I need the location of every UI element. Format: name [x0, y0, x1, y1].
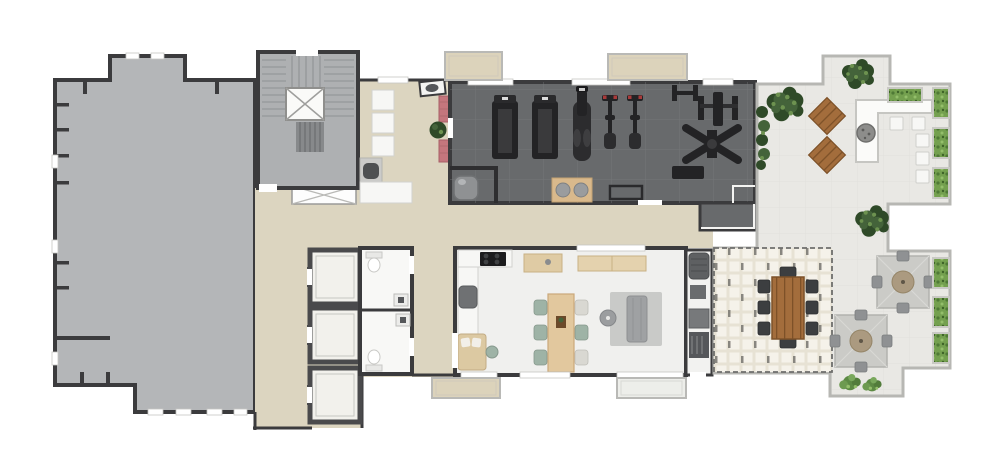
grill-sink	[690, 285, 706, 299]
treadmill-1	[492, 95, 518, 159]
dining-table	[548, 294, 574, 372]
stair-door-gap	[296, 48, 318, 56]
hedge-e4	[933, 258, 949, 288]
washbasin-1	[394, 294, 408, 306]
corridor-floor	[450, 203, 713, 248]
pergola-chair-r1	[806, 280, 818, 293]
elevator-2	[307, 308, 360, 362]
elevator-1	[307, 250, 360, 304]
hedge-top	[888, 88, 922, 102]
gym-south-door	[638, 200, 662, 205]
stool-1	[890, 117, 903, 130]
dining-table-group	[534, 294, 588, 372]
green-stool	[486, 346, 498, 358]
stair-lower-flight	[296, 122, 324, 152]
pergola-long-table	[772, 277, 804, 339]
stool-4	[916, 152, 929, 165]
grill	[689, 253, 709, 279]
daybed	[458, 334, 486, 370]
stair-core	[258, 48, 358, 192]
lounge-seat-2	[372, 113, 394, 133]
lounge-top-window	[378, 77, 408, 83]
room-open-slab-area	[52, 53, 255, 415]
lounge-seat-1	[372, 90, 394, 110]
cooktop	[480, 252, 506, 266]
hedge-e3	[933, 168, 949, 198]
treadmill-2	[532, 95, 558, 159]
low-bench	[672, 166, 704, 179]
gym-west-door	[448, 118, 453, 138]
armchair	[459, 286, 477, 308]
umbrella-table-1	[872, 251, 934, 313]
lounge-pouf	[363, 163, 379, 179]
sofa	[627, 296, 647, 342]
grill-door-gap	[690, 372, 706, 377]
pergola-chair-l3	[758, 322, 770, 335]
wall-sink	[419, 80, 445, 97]
lounge-counter	[360, 182, 412, 203]
grill-cabinet	[689, 332, 709, 358]
hedge-e1	[933, 88, 949, 118]
stair-void	[286, 88, 324, 120]
party-west-door	[452, 333, 458, 368]
slab-floor	[55, 56, 255, 412]
pergola-chair-r3	[806, 322, 818, 335]
hedge-e5	[933, 297, 949, 327]
gym-annex	[700, 203, 757, 230]
restroom-door-1	[409, 256, 414, 274]
pergola-chair-l2	[758, 301, 770, 314]
hedge-e2	[933, 128, 949, 158]
stool-2	[912, 117, 925, 130]
lounge-seat-3	[372, 136, 394, 156]
pergola-chair-r2	[806, 301, 818, 314]
sideboard-1	[524, 254, 562, 272]
hedge-e6	[933, 333, 949, 363]
grill-station	[686, 250, 712, 377]
stair-side-gap	[259, 184, 277, 192]
stool-3	[916, 134, 929, 147]
washbasin-2	[396, 314, 410, 326]
umbrella-table-2	[830, 310, 892, 372]
restroom-door-2	[409, 338, 414, 356]
grill-fridge	[689, 309, 709, 328]
floor-plan	[0, 0, 1000, 464]
party-room	[452, 245, 686, 378]
elevator-bank	[307, 250, 360, 422]
planter-pot	[430, 122, 447, 139]
restrooms	[360, 248, 414, 374]
stool-5	[916, 170, 929, 183]
pergola-chair-l1	[758, 280, 770, 293]
sideboard-2	[578, 256, 646, 271]
floor-plan-canvas	[0, 0, 1000, 464]
pergola-dining	[714, 248, 832, 372]
elevator-3	[307, 368, 360, 422]
exercise-mat	[552, 178, 592, 202]
pergola-chair-top	[780, 267, 796, 277]
fire-pit	[857, 124, 875, 142]
